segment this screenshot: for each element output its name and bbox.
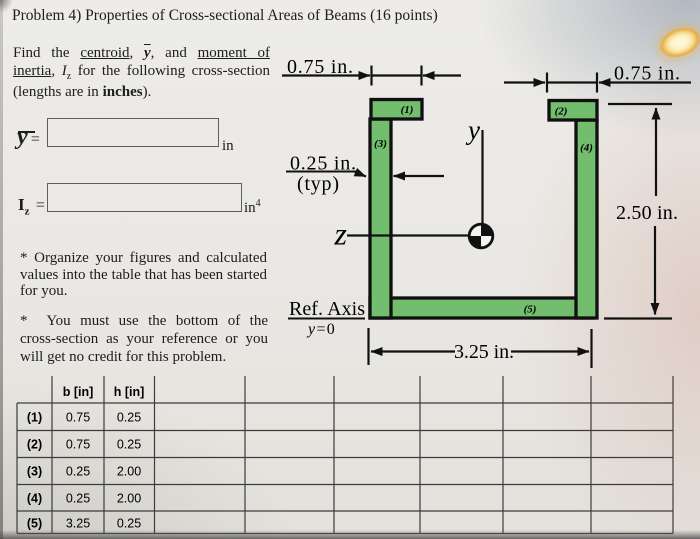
svg-text:(5): (5) [524,304,537,316]
svg-text:0.75 in.: 0.75 in. [614,63,680,85]
svg-text:(2): (2) [27,438,42,452]
svg-text:b [in]: b [in] [63,385,94,399]
svg-text:0.25: 0.25 [66,465,90,479]
svg-text:3.25: 3.25 [66,517,90,531]
svg-text:z: z [334,216,348,252]
svg-text:h [in]: h [in] [114,385,145,399]
svg-text:0.25: 0.25 [117,411,141,425]
svg-text:2.00: 2.00 [117,492,141,506]
svg-text:(1): (1) [27,411,42,425]
svg-text:(1): (1) [401,104,414,116]
svg-text:0.75: 0.75 [66,438,90,452]
svg-text:(4): (4) [27,492,42,506]
svg-text:y: y [465,115,480,145]
svg-text:0.25: 0.25 [117,438,141,452]
svg-text:0.25: 0.25 [66,492,90,506]
svg-text:3.25 in.: 3.25 in. [454,341,514,363]
svg-text:Ref. Axis: Ref. Axis [289,298,365,320]
svg-text:0.75: 0.75 [66,411,90,425]
svg-text:2.50 in.: 2.50 in. [616,202,678,224]
svg-text:y = 0: y = 0 [306,321,335,338]
svg-text:0.25: 0.25 [117,517,141,531]
svg-text:2.00: 2.00 [117,465,141,479]
svg-text:(2): (2) [555,106,568,118]
svg-text:(3): (3) [27,465,42,479]
svg-text:(typ): (typ) [297,173,339,195]
svg-text:(5): (5) [27,517,42,531]
svg-text:(4): (4) [580,142,593,154]
svg-text:(3): (3) [374,138,387,150]
